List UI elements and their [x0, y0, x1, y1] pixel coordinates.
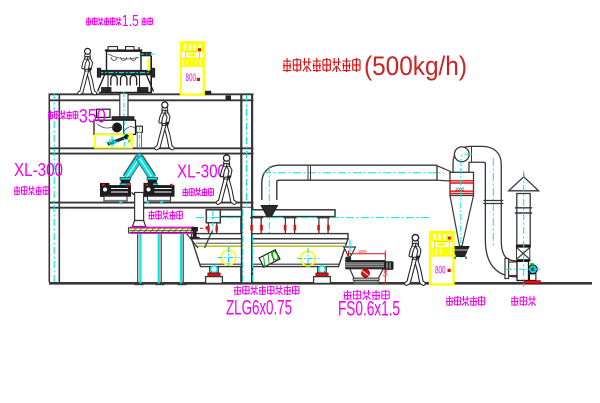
svg-text:FS0.6x1.5: FS0.6x1.5	[338, 298, 400, 321]
svg-text:XL-300: XL-300	[14, 160, 63, 180]
svg-text:1600: 1600	[455, 186, 465, 191]
svg-text:800: 800	[435, 265, 446, 277]
svg-text:800: 800	[186, 72, 197, 84]
svg-text:350: 350	[79, 106, 106, 127]
svg-text:1500: 1500	[358, 249, 367, 254]
svg-text:ZLG6x0.75: ZLG6x0.75	[226, 297, 292, 320]
svg-text:(500kg/h): (500kg/h)	[364, 51, 467, 81]
svg-text:XL-300: XL-300	[177, 162, 226, 182]
svg-text:1.5: 1.5	[122, 13, 139, 30]
